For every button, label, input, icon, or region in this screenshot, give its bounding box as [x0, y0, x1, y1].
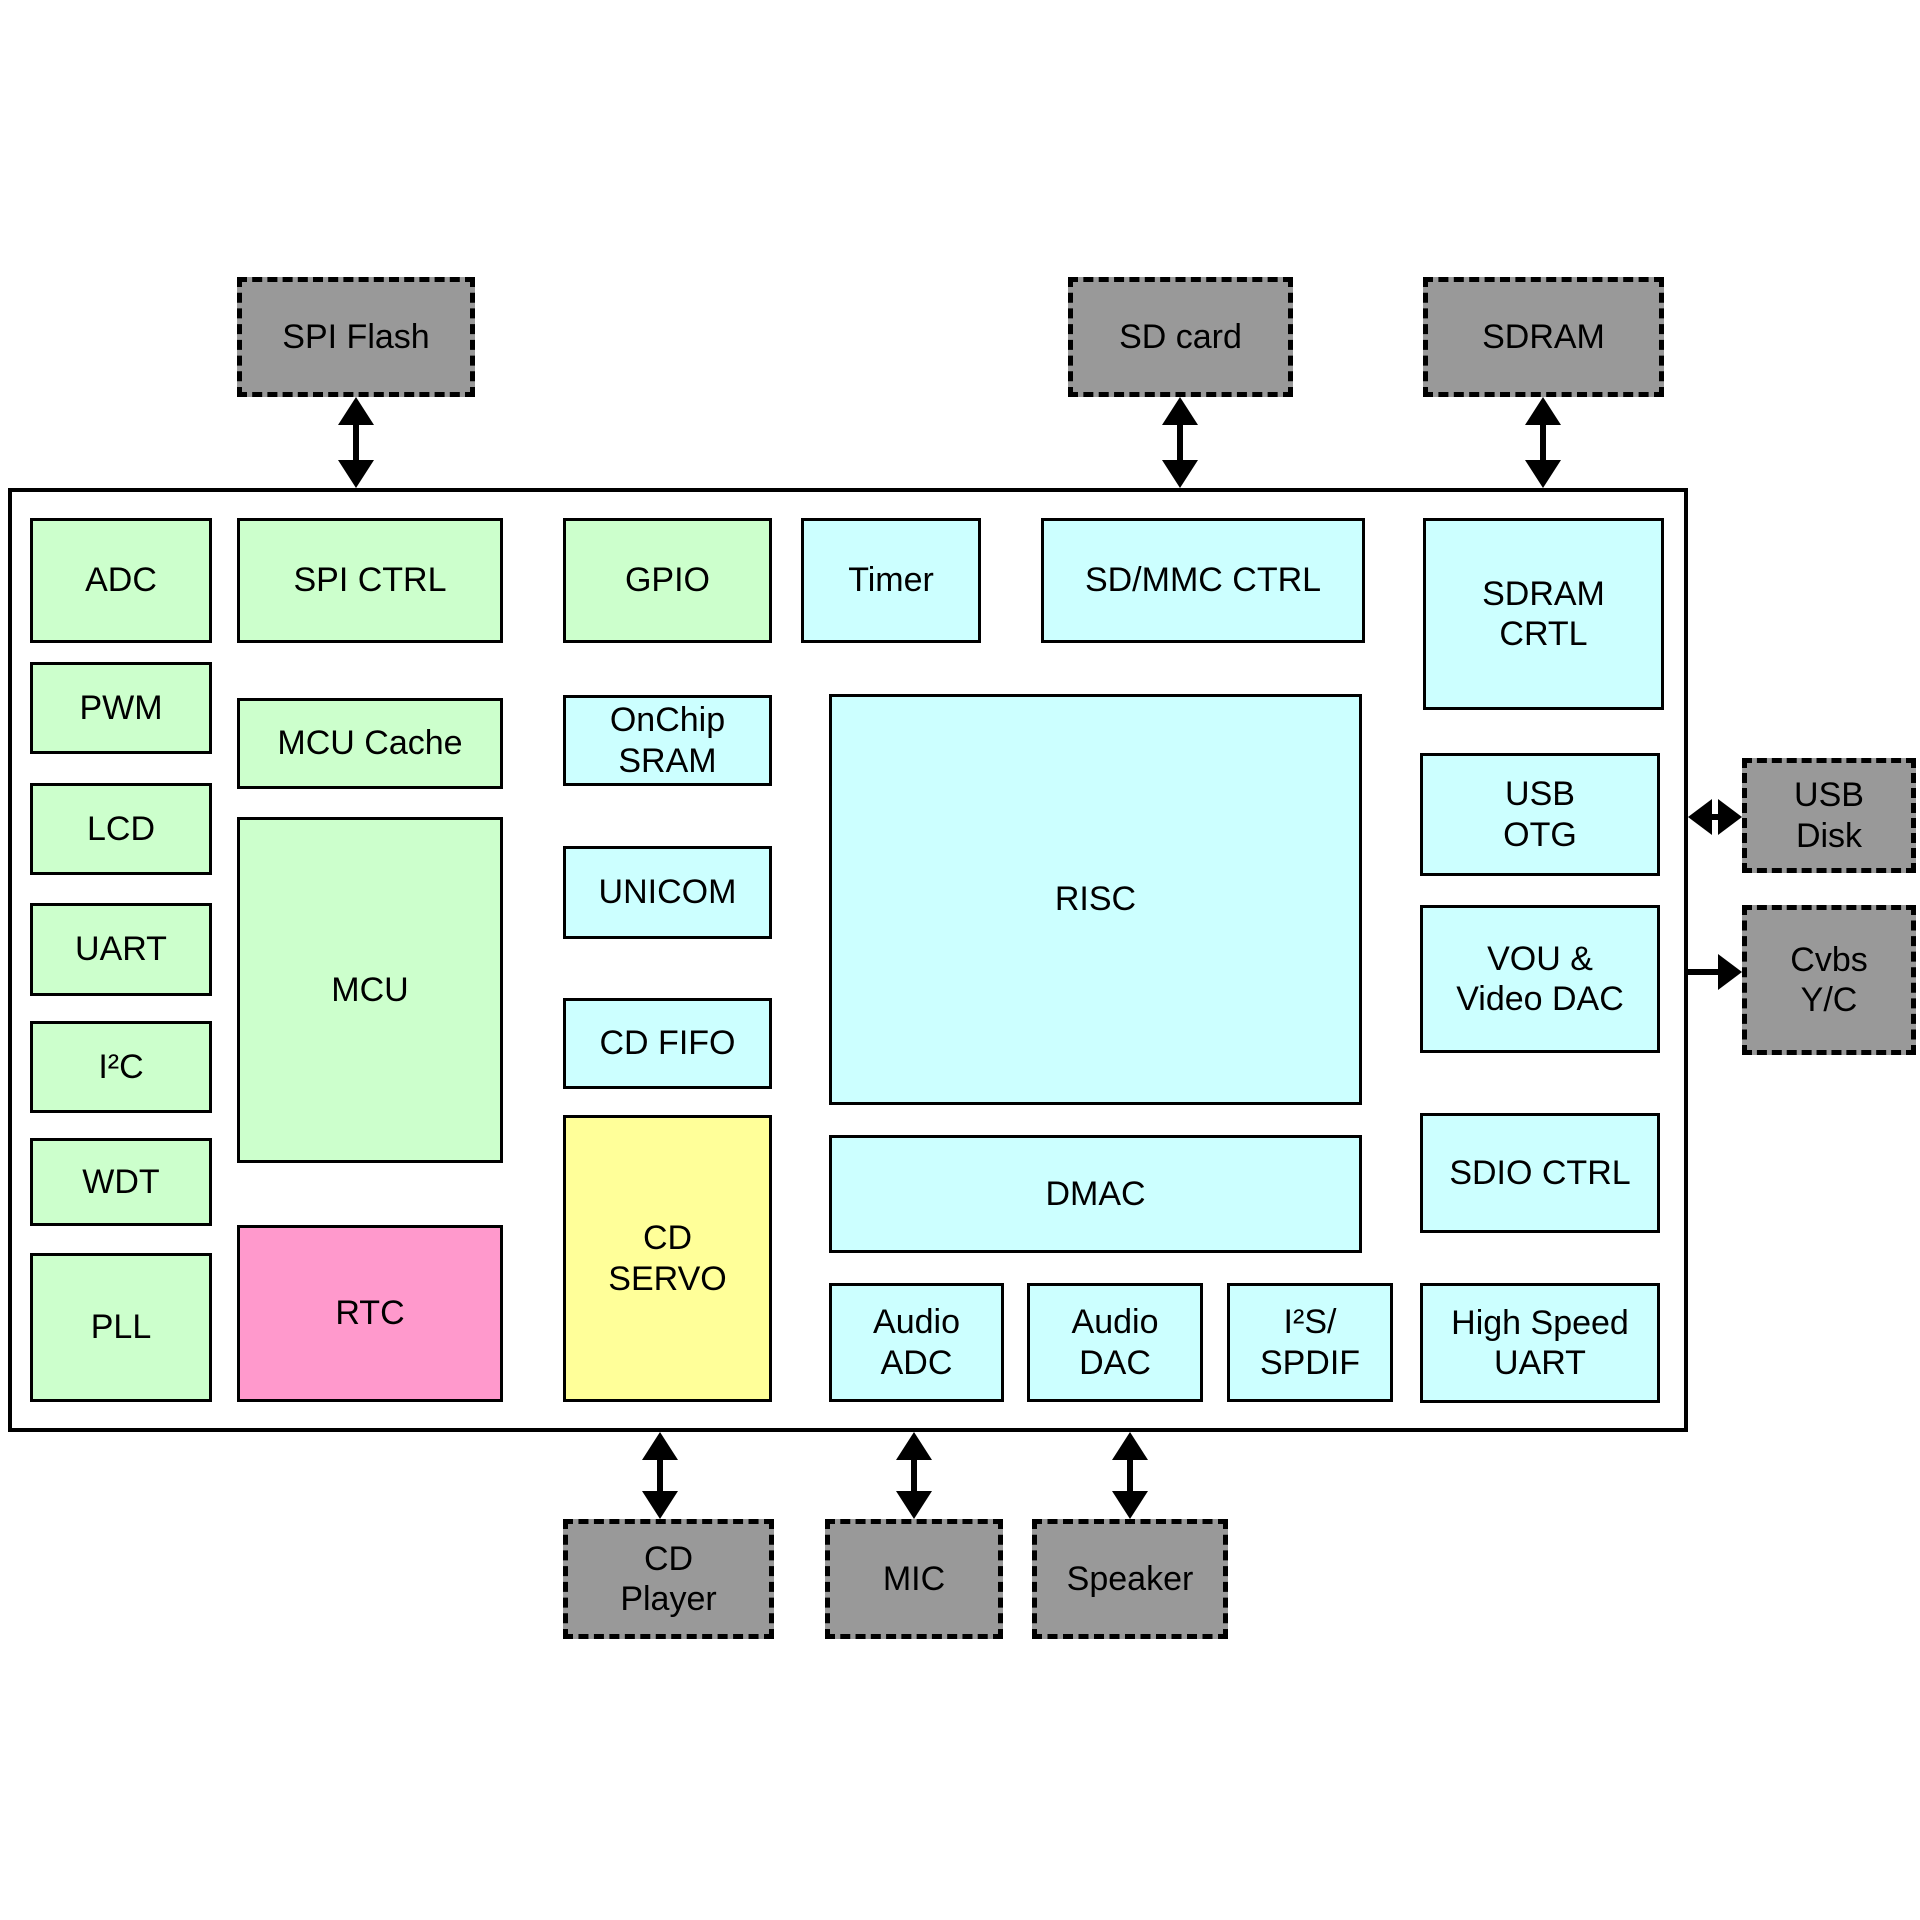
block-audio-adc: Audio ADC — [829, 1283, 1004, 1402]
block-wdt: WDT — [30, 1138, 212, 1226]
arrow-head-down-icon — [338, 460, 374, 488]
arrow-sdram — [1525, 397, 1561, 488]
block-high-speed-uart: High Speed UART — [1420, 1283, 1660, 1403]
arrow-head-down-icon — [1162, 460, 1198, 488]
external-mic: MIC — [825, 1519, 1003, 1639]
arrow-mic — [896, 1432, 932, 1519]
arrow-head-down-icon — [1525, 460, 1561, 488]
block-i2s-spdif: I²S/ SPDIF — [1227, 1283, 1393, 1402]
arrow-head-right-icon — [1718, 954, 1742, 990]
block-rtc: RTC — [237, 1225, 503, 1402]
arrow-head-down-icon — [896, 1491, 932, 1519]
block-cd-servo: CD SERVO — [563, 1115, 772, 1402]
block-unicom: UNICOM — [563, 846, 772, 939]
block-cd-fifo: CD FIFO — [563, 998, 772, 1089]
block-audio-dac: Audio DAC — [1027, 1283, 1203, 1402]
arrow-head-down-icon — [642, 1491, 678, 1519]
arrow-head-down-icon — [1112, 1491, 1148, 1519]
block-gpio: GPIO — [563, 518, 772, 643]
external-cvbs-yc: Cvbs Y/C — [1742, 905, 1916, 1055]
external-spi-flash: SPI Flash — [237, 277, 475, 397]
block-sdram-crtl: SDRAM CRTL — [1423, 518, 1664, 710]
block-sdio-ctrl: SDIO CTRL — [1420, 1113, 1660, 1233]
arrow-sd-card — [1162, 397, 1198, 488]
block-pll: PLL — [30, 1253, 212, 1402]
soc-block-diagram: SPI Flash SD card SDRAM ADC SPI CTRL GPI… — [0, 0, 1920, 1920]
arrow-usb-otg-usb-disk — [1688, 799, 1742, 835]
arrow-spi-flash — [338, 397, 374, 488]
block-pwm: PWM — [30, 662, 212, 754]
block-dmac: DMAC — [829, 1135, 1362, 1253]
block-mcu: MCU — [237, 817, 503, 1163]
block-adc: ADC — [30, 518, 212, 643]
external-usb-disk: USB Disk — [1742, 758, 1916, 873]
block-uart: UART — [30, 903, 212, 996]
block-lcd: LCD — [30, 783, 212, 875]
block-sd-mmc-ctrl: SD/MMC CTRL — [1041, 518, 1365, 643]
external-sdram: SDRAM — [1423, 277, 1664, 397]
external-sd-card: SD card — [1068, 277, 1293, 397]
block-onchip-sram: OnChip SRAM — [563, 695, 772, 786]
block-i2c: I²C — [30, 1021, 212, 1113]
arrow-speaker — [1112, 1432, 1148, 1519]
block-timer: Timer — [801, 518, 981, 643]
external-cd-player: CD Player — [563, 1519, 774, 1639]
block-risc: RISC — [829, 694, 1362, 1105]
arrow-head-right-icon — [1718, 799, 1742, 835]
block-vou-video-dac: VOU & Video DAC — [1420, 905, 1660, 1053]
arrow-vou-cvbs — [1688, 954, 1742, 990]
arrow-cd-player — [642, 1432, 678, 1519]
block-usb-otg: USB OTG — [1420, 753, 1660, 876]
external-speaker: Speaker — [1032, 1519, 1228, 1639]
block-spi-ctrl: SPI CTRL — [237, 518, 503, 643]
block-mcu-cache: MCU Cache — [237, 698, 503, 789]
